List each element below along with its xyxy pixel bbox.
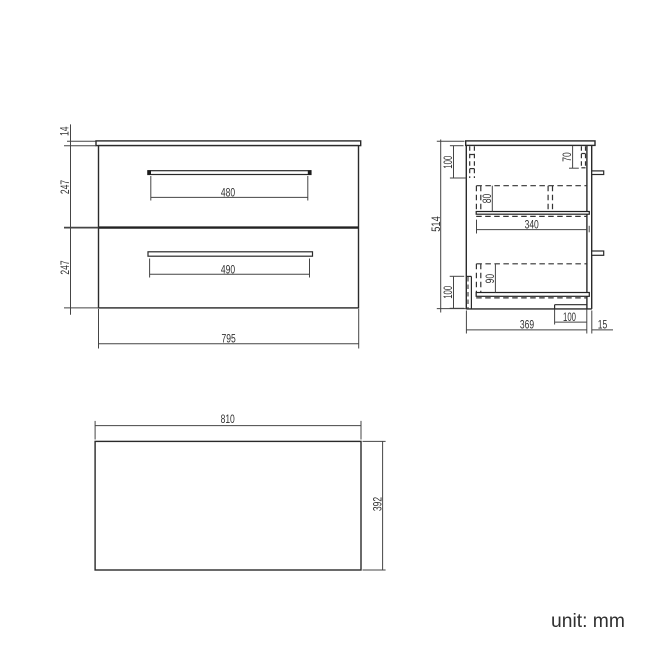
svg-text:247: 247	[60, 260, 72, 274]
svg-text:490: 490	[221, 264, 235, 276]
svg-text:392: 392	[372, 497, 384, 511]
svg-text:810: 810	[221, 414, 235, 426]
svg-text:480: 480	[221, 187, 235, 199]
svg-text:100: 100	[443, 286, 455, 299]
svg-text:15: 15	[598, 320, 608, 332]
svg-text:369: 369	[520, 320, 534, 332]
svg-text:70: 70	[562, 152, 574, 162]
svg-text:340: 340	[525, 219, 539, 231]
svg-text:100: 100	[563, 312, 576, 324]
svg-text:unit: mm: unit: mm	[551, 611, 625, 632]
svg-text:247: 247	[60, 180, 72, 194]
svg-text:80: 80	[482, 194, 494, 204]
svg-text:514: 514	[431, 216, 443, 232]
svg-text:795: 795	[222, 333, 236, 345]
svg-text:14: 14	[60, 126, 72, 136]
svg-text:100: 100	[443, 156, 455, 169]
svg-text:90: 90	[485, 274, 497, 284]
